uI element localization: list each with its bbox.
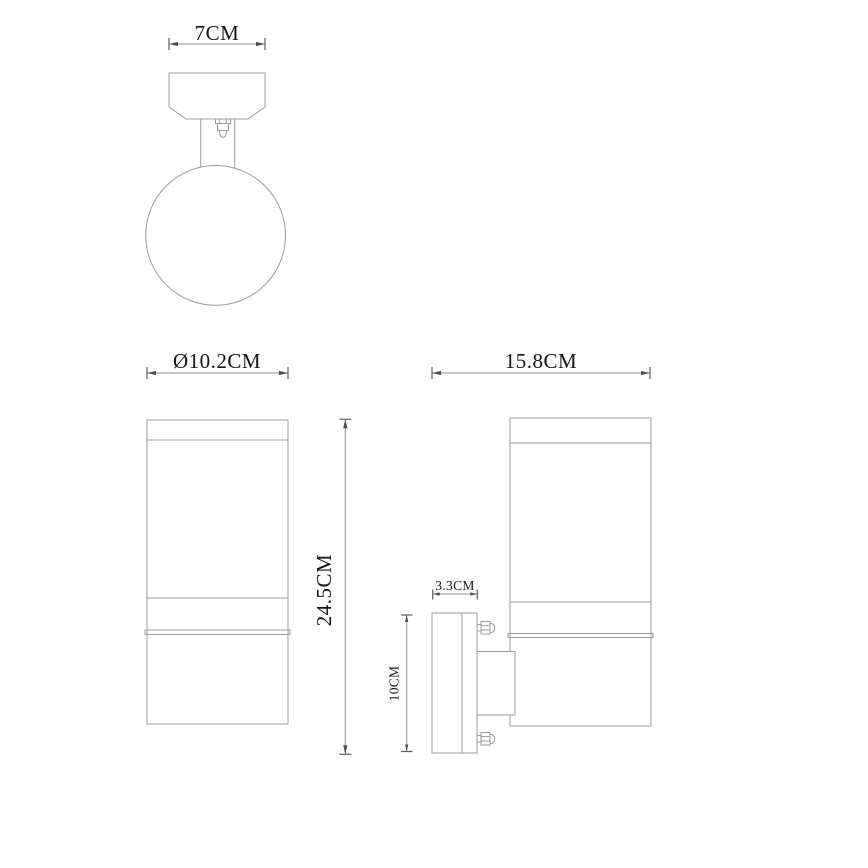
ring-flange: [145, 630, 290, 635]
mount-arm: [477, 652, 515, 716]
screw-dome: [490, 734, 495, 744]
arrowhead-bottom-icon: [343, 745, 347, 754]
screw-body: [218, 124, 229, 131]
dimension-label: 10CM: [387, 666, 402, 702]
technical-drawing-canvas: 7CM: [0, 0, 868, 868]
screw-flange: [216, 119, 231, 124]
dimension-label: 24.5CM: [312, 554, 336, 626]
dimension-label: 7CM: [195, 21, 240, 45]
fixing-screw-top: [477, 622, 495, 635]
arrowhead-right-icon: [279, 371, 288, 375]
dimension-side-width: 15.8CM: [432, 349, 650, 379]
dimension-front-height: 24.5CM: [312, 419, 351, 754]
arrowhead-left-icon: [169, 42, 178, 46]
arrowhead-right-icon: [641, 371, 650, 375]
globe-circle: [146, 166, 286, 306]
arrowhead-left-icon: [147, 371, 156, 375]
screw-body: [481, 622, 490, 635]
arrowhead-left-icon: [432, 371, 441, 375]
side-view: 15.8CM: [387, 349, 654, 753]
front-view: Ø10.2CM 24.5CM: [145, 349, 351, 754]
screw-dome: [220, 131, 227, 138]
arrowhead-top-icon: [405, 615, 408, 622]
cylinder-body-front: [147, 420, 288, 724]
dimension-label: 3.3CM: [435, 578, 474, 593]
fixing-screw-bottom: [477, 733, 495, 746]
arrowhead-bottom-icon: [405, 745, 408, 752]
wall-plate: [432, 613, 477, 753]
ring-flange: [508, 634, 653, 638]
dimension-plate-height: 10CM: [387, 615, 413, 752]
dimension-plate-depth: 3.3CM: [433, 578, 478, 600]
screw-dome: [490, 623, 495, 633]
dimension-label: Ø10.2CM: [173, 349, 261, 373]
top-view: 7CM: [146, 21, 286, 305]
dimension-front-diameter: Ø10.2CM: [147, 349, 288, 379]
cylinder-body-side: [510, 418, 651, 726]
screw-fitting-top-view: [216, 119, 231, 137]
screw-neck: [477, 625, 481, 632]
mount-cap-outline: [169, 73, 265, 119]
screw-neck: [477, 736, 481, 743]
technical-drawing-page: 7CM: [0, 0, 868, 868]
screw-body: [481, 733, 490, 746]
dimension-label: 15.8CM: [505, 349, 577, 373]
arrowhead-top-icon: [343, 419, 347, 428]
arrowhead-right-icon: [256, 42, 265, 46]
dimension-top-width: 7CM: [169, 21, 265, 50]
